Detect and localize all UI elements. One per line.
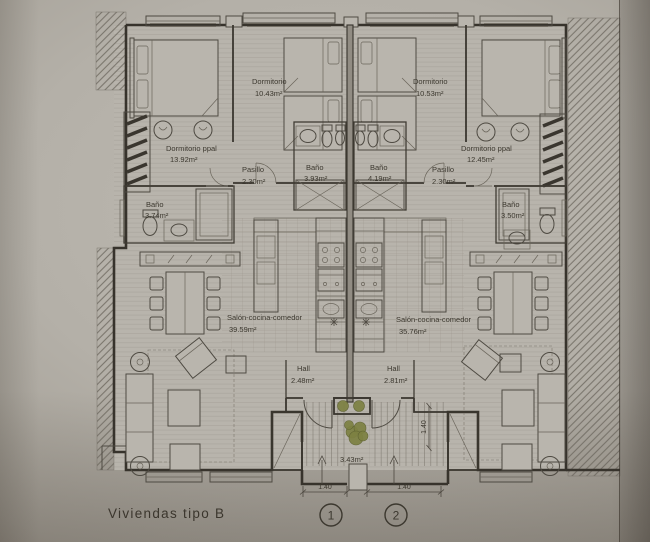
extractor-fan-icon (330, 318, 338, 326)
label-bano-right-inner-area: 4.19m² (368, 174, 392, 183)
label-bano-right-outer-name: Baño (502, 200, 520, 209)
bottom-window-sills (146, 472, 532, 482)
label-bano-left-outer-name: Baño (146, 200, 164, 209)
label-salon-left-name: Salón-cocina-comedor (227, 313, 303, 322)
label-hall-left-name: Hall (297, 364, 310, 373)
dim-vertical: 1.40 (421, 420, 428, 434)
dim-left: 1.40 (318, 484, 332, 491)
label-dorm-left-name: Dormitorio (252, 77, 287, 86)
window-sill (243, 13, 335, 23)
extractor-fan-icon (362, 318, 370, 326)
floor-plan-photo: 1.40 1.40 1.40 1 2 Dormitorio ppal 13.92… (0, 0, 650, 542)
floor-plan-drawing: 1.40 1.40 1.40 1 2 Dormitorio ppal 13.92… (0, 0, 650, 542)
label-pasillo-right-area: 2.30m² (432, 177, 456, 186)
armchair (502, 444, 532, 470)
label-dorm-left-area: 10.43m² (255, 89, 283, 98)
sofa (538, 374, 565, 462)
party-wall (347, 25, 353, 402)
svg-text:1: 1 (328, 509, 335, 523)
page-title: Viviendas tipo B (108, 506, 225, 521)
coffee-table (502, 390, 534, 426)
label-salon-right-area: 35.76m² (399, 327, 427, 336)
label-pasillo-right-name: Pasillo (432, 165, 454, 174)
axis-marker-1: 1 (320, 504, 342, 526)
label-dorm-ppal-left-name: Dormitorio ppal (166, 144, 217, 153)
label-salon-right-name: Salón-cocina-comedor (396, 315, 472, 324)
label-hall-right-name: Hall (387, 364, 400, 373)
label-dorm-ppal-left-area: 13.92m² (170, 155, 198, 164)
label-bano-right-outer-area: 3.50m² (501, 211, 525, 220)
label-dorm-ppal-right-name: Dormitorio ppal (461, 144, 512, 153)
label-bano-left-outer-area: 3.74m² (145, 211, 169, 220)
entry-pillar (349, 464, 367, 490)
label-dorm-right-name: Dormitorio (413, 77, 448, 86)
label-pasillo-left-area: 2.30m² (242, 177, 266, 186)
label-dorm-ppal-right-area: 12.45m² (467, 155, 495, 164)
sofa (126, 374, 153, 462)
label-bano-left-inner-area: 3.93m² (304, 174, 328, 183)
label-bano-right-inner-name: Baño (370, 163, 388, 172)
label-pasillo-left-name: Pasillo (242, 165, 264, 174)
axis-marker-2: 2 (385, 504, 407, 526)
paper-edge (619, 0, 650, 542)
label-dorm-right-area: 10.53m² (416, 89, 444, 98)
armchair (170, 444, 200, 470)
coffee-table (168, 390, 200, 426)
pillar (226, 16, 242, 27)
label-hall-right-area: 2.81m² (384, 376, 408, 385)
window-sill (366, 13, 458, 23)
dim-right: 1.40 (397, 484, 411, 491)
svg-text:2: 2 (393, 509, 400, 523)
label-porch-area: 3.43m² (340, 455, 364, 464)
label-bano-left-inner-name: Baño (306, 163, 324, 172)
label-salon-left-area: 39.59m² (229, 325, 257, 334)
label-hall-left-area: 2.48m² (291, 376, 315, 385)
